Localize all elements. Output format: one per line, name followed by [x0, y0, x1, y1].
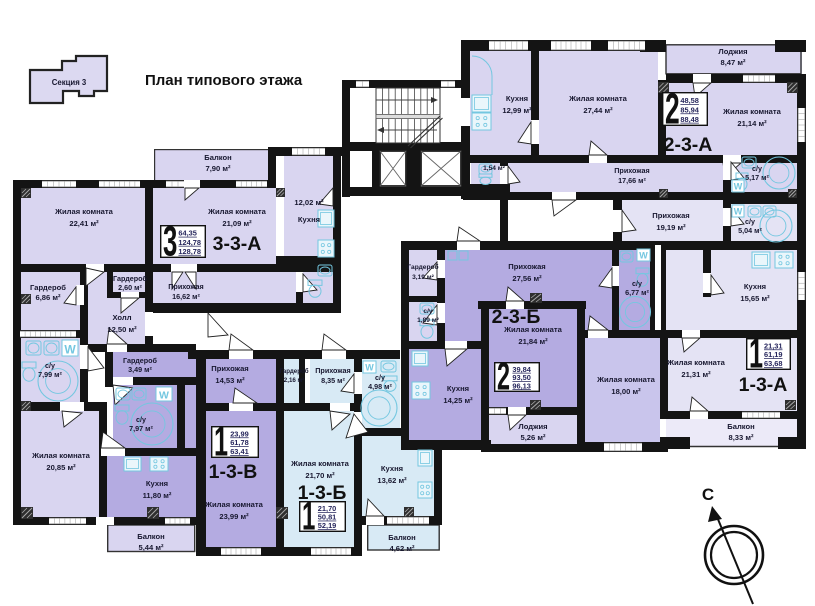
- svg-text:23,9961,7863,41: 23,9961,7863,41: [230, 429, 249, 456]
- svg-text:1-3-А: 1-3-А: [739, 374, 788, 396]
- svg-text:39,8493,5096,13: 39,8493,5096,13: [512, 365, 531, 391]
- svg-text:1-3-Б: 1-3-Б: [298, 482, 347, 504]
- svg-text:W: W: [734, 207, 743, 217]
- svg-text:W: W: [639, 251, 648, 261]
- svg-text:21,3161,1963,68: 21,3161,1963,68: [764, 341, 783, 368]
- svg-text:2-3-А: 2-3-А: [664, 134, 713, 156]
- svg-text:W: W: [734, 182, 743, 192]
- svg-text:1-3-В: 1-3-В: [209, 461, 258, 483]
- svg-text:W: W: [64, 343, 76, 357]
- svg-text:С: С: [702, 485, 714, 504]
- svg-text:1,54 м²: 1,54 м²: [483, 165, 506, 172]
- svg-text:План типового этажа: План типового этажа: [145, 72, 303, 89]
- svg-text:2: 2: [665, 83, 680, 133]
- svg-text:1: 1: [749, 331, 763, 377]
- svg-text:Прихожая17,66 м²: Прихожая17,66 м²: [614, 166, 649, 185]
- svg-text:3-3-А: 3-3-А: [213, 233, 262, 255]
- svg-text:Прихожая16,62 м²: Прихожая16,62 м²: [168, 282, 203, 301]
- svg-text:W: W: [365, 363, 374, 373]
- svg-text:2: 2: [497, 354, 510, 398]
- svg-text:W: W: [159, 390, 169, 402]
- svg-text:48,5885,9488,48: 48,5885,9488,48: [680, 96, 699, 124]
- svg-text:2-3-Б: 2-3-Б: [492, 306, 541, 328]
- svg-text:21,7050,8152,19: 21,7050,8152,19: [318, 504, 337, 530]
- svg-text:3: 3: [163, 217, 177, 266]
- svg-text:1: 1: [214, 419, 228, 465]
- svg-text:Секция 3: Секция 3: [52, 78, 87, 87]
